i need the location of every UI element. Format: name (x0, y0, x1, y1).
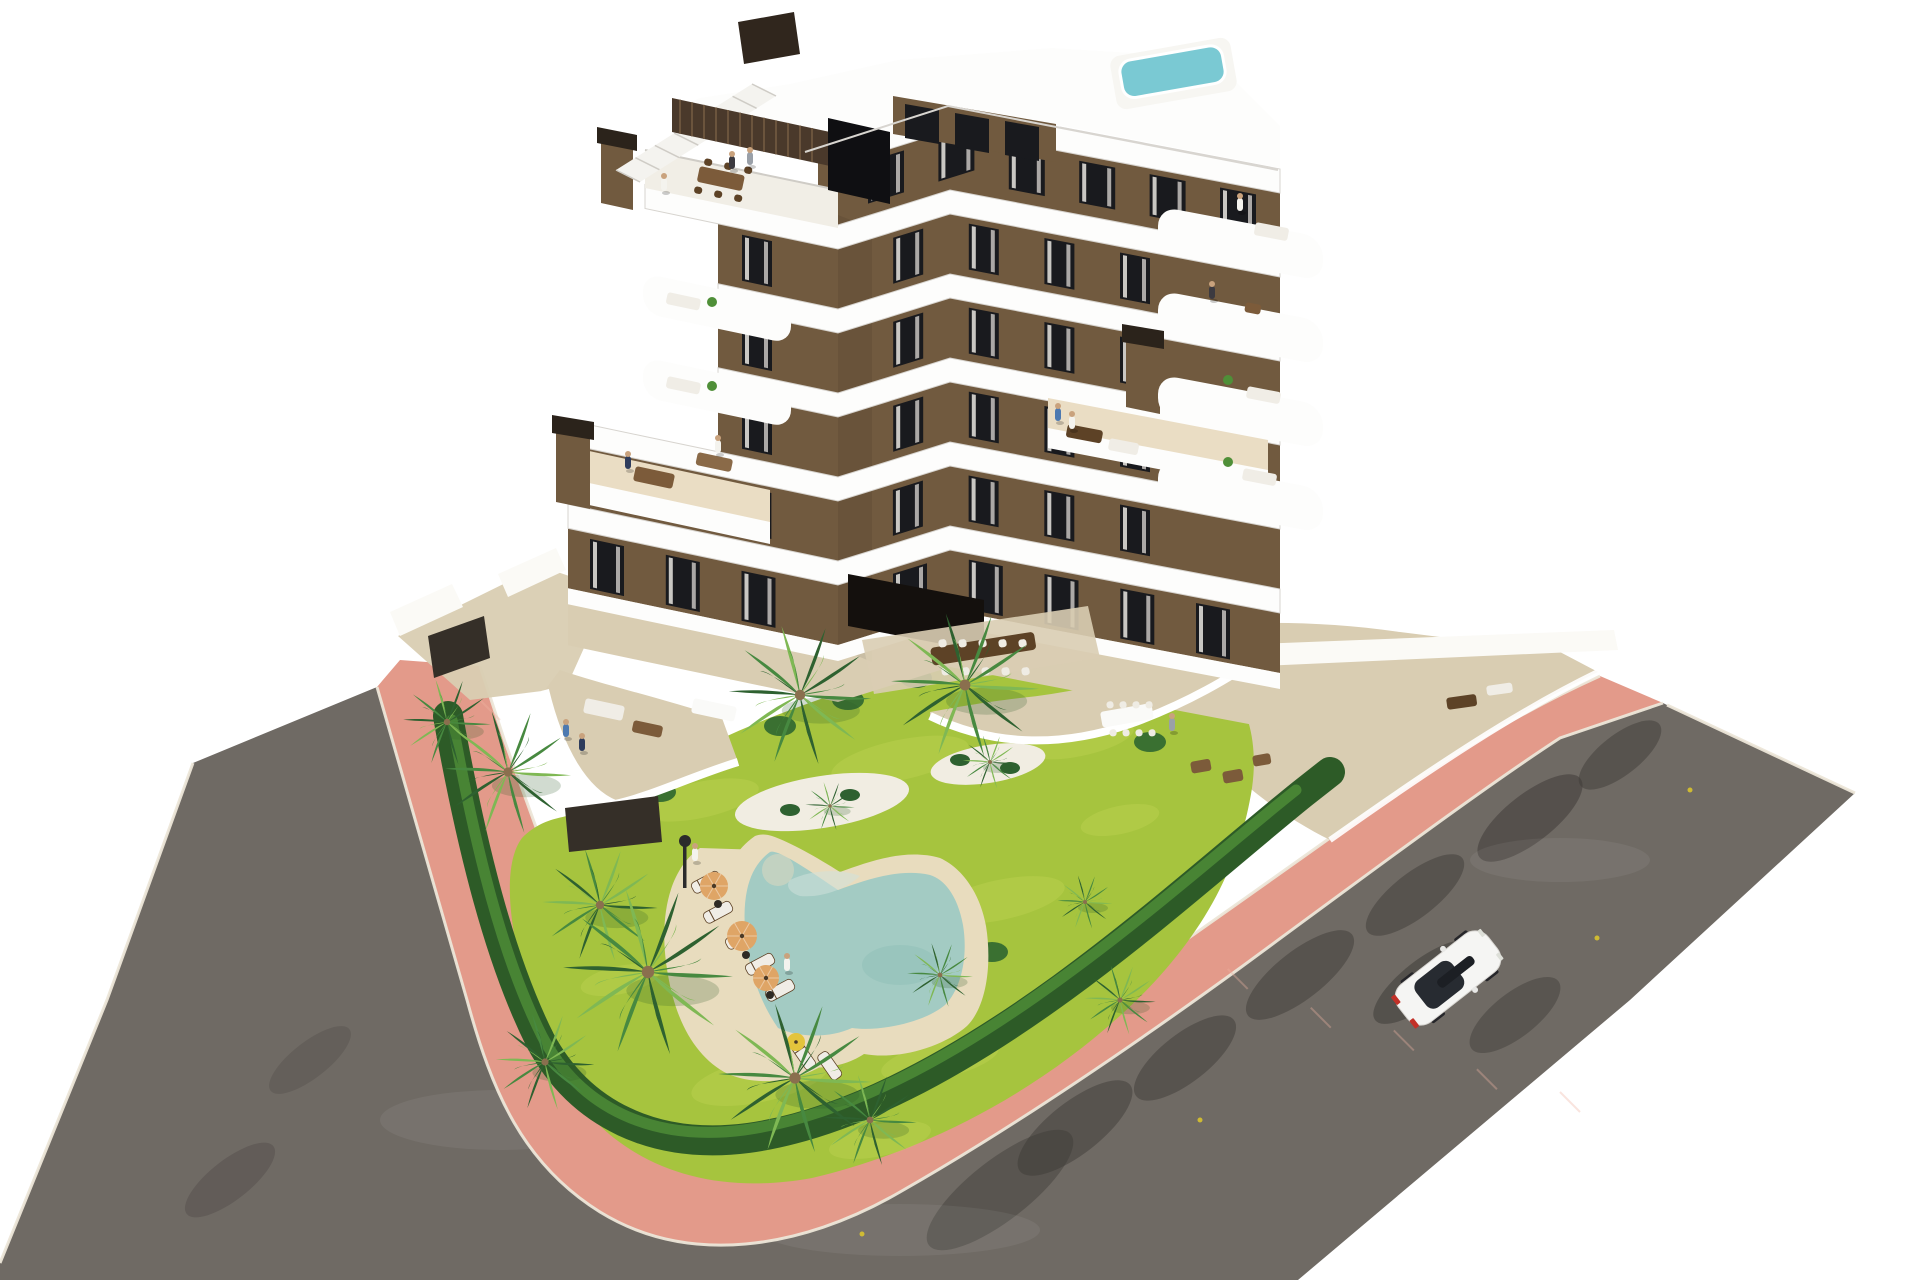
window-curtain (1142, 511, 1146, 554)
palm-crown (960, 680, 971, 691)
window-curtain (764, 241, 768, 284)
person-shadow (785, 971, 793, 975)
person-body (747, 152, 753, 165)
window-curtain (972, 226, 976, 269)
person-body (1169, 718, 1175, 731)
window-curtain (972, 310, 976, 353)
parasol-base (742, 951, 750, 959)
window (969, 224, 999, 276)
window-curtain (991, 314, 995, 357)
window-curtain (896, 322, 900, 365)
person-shadow (1070, 429, 1078, 433)
window (1079, 161, 1115, 210)
person-shadow (693, 861, 701, 865)
person-body (563, 724, 569, 737)
window-curtain (896, 238, 900, 281)
window-curtain (972, 478, 976, 521)
window-curtain (1047, 493, 1051, 536)
palm-crown (642, 966, 654, 978)
window-curtain (915, 400, 919, 443)
window-curtain (1066, 328, 1070, 371)
person-body (625, 456, 631, 469)
window-curtain (1123, 591, 1127, 638)
window (1044, 490, 1074, 542)
person-body (1209, 286, 1215, 299)
window (893, 228, 923, 283)
person-body (1069, 416, 1075, 429)
window-curtain (768, 578, 772, 625)
palm-crown (789, 1072, 800, 1083)
window (742, 235, 772, 287)
window (1044, 238, 1074, 290)
person-head (1069, 411, 1075, 417)
person-shadow (1056, 421, 1064, 425)
parasol-base (766, 991, 774, 999)
lamp-pole (683, 842, 687, 888)
palm-crown (1117, 997, 1122, 1002)
person-shadow (580, 751, 588, 755)
window-curtain (1123, 507, 1127, 550)
person-shadow (1238, 211, 1246, 215)
parasol-pole (764, 976, 768, 980)
window (893, 481, 923, 536)
window (1120, 505, 1150, 557)
window-curtain (1066, 244, 1070, 287)
palm-crown (988, 760, 992, 764)
window-curtain (991, 398, 995, 441)
person-shadow (564, 737, 572, 741)
window-curtain (896, 406, 900, 449)
window-curtain (1066, 496, 1070, 539)
person-shadow (716, 453, 724, 457)
fallen-leaf (1688, 788, 1693, 793)
window-curtain (669, 557, 673, 604)
palm-crown (444, 719, 450, 725)
parasol-base (714, 900, 722, 908)
window-curtain (1047, 325, 1051, 368)
person-head (1055, 403, 1061, 409)
person-shadow (662, 191, 670, 195)
window (893, 396, 923, 451)
parasol-pole (740, 934, 744, 938)
window (742, 571, 776, 628)
person-body (1237, 198, 1243, 211)
person-shadow (730, 169, 738, 173)
fallen-leaf (1595, 936, 1600, 941)
island-plant (780, 804, 800, 816)
window (590, 539, 624, 596)
window-curtain (1082, 163, 1086, 202)
window (1120, 589, 1154, 645)
potted-plant (707, 297, 717, 307)
render-canvas (0, 0, 1920, 1280)
person-shadow (748, 165, 756, 169)
window-curtain (1123, 255, 1127, 298)
window (1196, 603, 1230, 659)
palm-crown (503, 767, 512, 776)
person-body (784, 958, 790, 971)
window-curtain (1199, 606, 1203, 653)
person-head (692, 843, 698, 849)
person-head (563, 719, 569, 725)
window-curtain (972, 394, 976, 437)
potted-plant (1223, 457, 1233, 467)
person-head (1237, 193, 1243, 199)
beach-entry-shallow (762, 854, 794, 886)
window-curtain (1107, 168, 1111, 207)
palm-crown (867, 1117, 874, 1124)
palm-crown (938, 973, 943, 978)
window-curtain (991, 230, 995, 273)
island-plant (840, 789, 860, 801)
window (666, 555, 700, 612)
parasol-pole (794, 1040, 798, 1044)
pool-deep-patch (862, 945, 938, 985)
window (969, 308, 999, 360)
palm-crown (795, 690, 805, 700)
window-curtain (745, 573, 749, 620)
palm-crown (596, 901, 604, 909)
person-head (729, 151, 735, 157)
person-head (579, 733, 585, 739)
window-curtain (692, 562, 696, 609)
window-curtain (995, 567, 999, 614)
potted-plant (1223, 375, 1233, 385)
person-shadow (1210, 299, 1218, 303)
person-head (661, 173, 667, 179)
palm-crown (828, 804, 832, 808)
fallen-leaf (1198, 1118, 1203, 1123)
palm-crown (541, 1058, 548, 1065)
person-body (729, 156, 735, 169)
window-curtain (1146, 595, 1150, 642)
person-shadow (626, 469, 634, 473)
person-head (784, 953, 790, 959)
window (893, 312, 923, 367)
window-curtain (991, 482, 995, 525)
window-curtain (1222, 610, 1226, 657)
window-curtain (915, 316, 919, 359)
person-shadow (1170, 731, 1178, 735)
person-head (747, 147, 753, 153)
penthouse-window (1005, 121, 1039, 161)
person-head (1209, 281, 1215, 287)
window (969, 392, 999, 444)
window-curtain (745, 237, 749, 280)
window (1044, 322, 1074, 374)
person-body (715, 440, 721, 453)
window-curtain (896, 490, 900, 533)
person-body (692, 848, 698, 861)
roof-glazing-dark (828, 118, 890, 204)
window-curtain (915, 232, 919, 275)
window-curtain (941, 139, 945, 178)
person-head (715, 435, 721, 441)
window-curtain (1153, 177, 1157, 216)
fallen-leaf (860, 1232, 865, 1237)
window-curtain (593, 542, 597, 589)
window-curtain (1142, 259, 1146, 302)
person-body (661, 178, 667, 191)
potted-plant (707, 381, 717, 391)
scene-svg (0, 0, 1920, 1280)
person-head (625, 451, 631, 457)
penthouse-window (955, 113, 989, 153)
parasol-pole (712, 884, 716, 888)
island-plant (950, 754, 970, 766)
window (969, 476, 999, 528)
window-curtain (896, 154, 900, 193)
person-body (579, 738, 585, 751)
window (1120, 253, 1150, 305)
palm-crown (1083, 900, 1087, 904)
window-curtain (1047, 241, 1051, 284)
window-curtain (915, 484, 919, 527)
window-curtain (616, 546, 620, 593)
person-body (1055, 408, 1061, 421)
person-head (1169, 713, 1175, 719)
road-wear (1470, 838, 1650, 882)
lamp-head (679, 835, 691, 847)
